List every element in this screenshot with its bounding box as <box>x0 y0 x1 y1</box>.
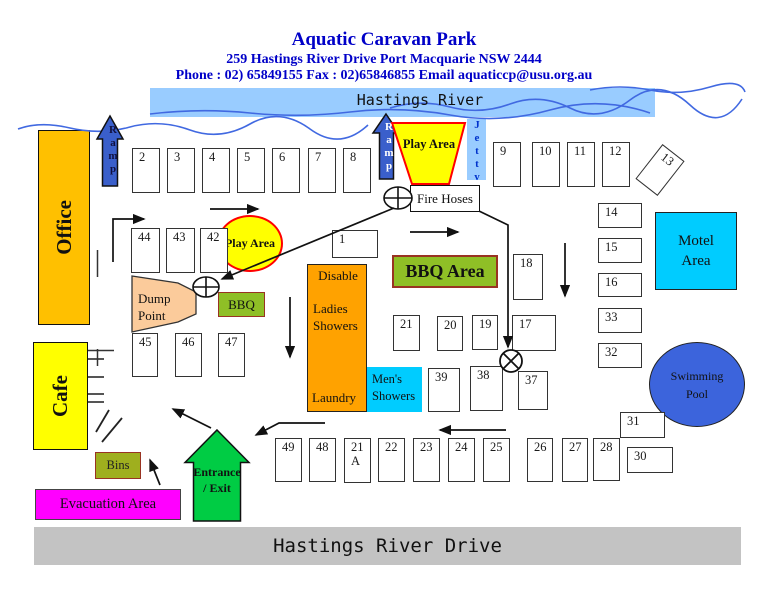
fire-hose-symbol-icon <box>193 277 219 297</box>
site-box-16: 16 <box>598 273 642 297</box>
cafe-area: Cafe <box>33 342 88 450</box>
site-number: 15 <box>599 239 641 255</box>
site-number: 47 <box>219 334 244 350</box>
site-number: 28 <box>594 439 619 455</box>
site-box-18: 18 <box>513 254 543 300</box>
site-box-13: 13 <box>635 144 684 196</box>
office-label: Office <box>52 200 77 255</box>
ramp-label: Ramp <box>380 121 394 179</box>
site-box-30: 30 <box>627 447 673 473</box>
site-box-26: 26 <box>527 438 553 482</box>
cafe-label: Cafe <box>48 375 73 417</box>
site-box-33: 33 <box>598 308 642 333</box>
site-number: 21 <box>394 316 419 332</box>
bbq-label: BBQ <box>228 297 255 313</box>
site-box-6: 6 <box>272 148 300 193</box>
fire-hoses-sign: Fire Hoses <box>410 185 480 212</box>
page-title: Aquatic Caravan Park <box>0 29 768 51</box>
bbq-area-label: BBQ Area <box>405 261 484 282</box>
site-number: 1 <box>333 231 377 247</box>
site-box-47: 47 <box>218 333 245 377</box>
site-number: 17 <box>513 316 555 332</box>
site-box-42: 42 <box>200 228 228 273</box>
site-number: 11 <box>568 143 594 159</box>
site-number: 13 <box>653 145 683 173</box>
site-box-14: 14 <box>598 203 642 228</box>
site-number: 46 <box>176 334 201 350</box>
site-box-37: 37 <box>518 371 548 410</box>
site-box-1: 1 <box>332 230 378 258</box>
site-box-44: 44 <box>131 228 160 273</box>
site-number: 2 <box>133 149 159 165</box>
road-bar: Hastings River Drive <box>34 527 741 565</box>
site-box-43: 43 <box>166 228 195 273</box>
site-number: 31 <box>621 413 664 429</box>
site-box-39: 39 <box>428 368 460 412</box>
site-number: 12 <box>603 143 629 159</box>
site-box-38: 38 <box>470 366 503 411</box>
site-number: 42 <box>201 229 227 245</box>
address-line: 259 Hastings River Drive Port Macquarie … <box>0 52 768 68</box>
site-box-21: 21 <box>393 315 420 351</box>
ramp-label: Ramp <box>103 124 118 186</box>
site-number: 33 <box>599 309 641 325</box>
site-box-8: 8 <box>343 148 371 193</box>
site-box-2: 2 <box>132 148 160 193</box>
site-number: 10 <box>533 143 559 159</box>
amenities-block: Disable Ladies Showers Laundry <box>307 264 367 412</box>
site-box-46: 46 <box>175 333 202 377</box>
site-box-21A: 21 A <box>344 438 371 483</box>
site-box-45: 45 <box>132 333 158 377</box>
site-box-19: 19 <box>472 315 498 350</box>
site-number: 4 <box>203 149 229 165</box>
bbq-spot: BBQ <box>218 292 265 317</box>
site-number: 20 <box>438 317 462 333</box>
site-number: 26 <box>528 439 552 455</box>
site-number: 27 <box>563 439 587 455</box>
site-number: 37 <box>519 372 547 388</box>
site-number: 30 <box>628 448 672 464</box>
contact-line: Phone : 02) 65849155 Fax : 02)65846855 E… <box>0 68 768 84</box>
laundry-label: Laundry <box>312 390 364 406</box>
site-number: 19 <box>473 316 497 332</box>
motel-area-label: Motel Area <box>673 231 719 272</box>
site-box-17: 17 <box>512 315 556 351</box>
bins-area: Bins <box>95 452 141 479</box>
disable-label: Disable <box>312 268 364 284</box>
jetty-label: Jetty <box>471 119 482 180</box>
swimming-pool-label: Swimming Pool <box>666 367 728 403</box>
site-number: 25 <box>484 439 509 455</box>
site-box-15: 15 <box>598 238 642 263</box>
road-markings <box>96 410 122 442</box>
fire-hoses-label: Fire Hoses <box>417 191 473 207</box>
site-number: 48 <box>310 439 335 455</box>
caravan-park-map: Aquatic Caravan Park 259 Hastings River … <box>0 0 768 593</box>
road-label: Hastings River Drive <box>273 535 502 557</box>
site-box-4: 4 <box>202 148 230 193</box>
ladies-showers-label: Ladies Showers <box>313 301 365 335</box>
site-number: 22 <box>379 439 404 455</box>
site-box-27: 27 <box>562 438 588 482</box>
site-box-9: 9 <box>493 142 521 187</box>
site-number: 32 <box>599 344 641 360</box>
bbq-area: BBQ Area <box>392 255 498 288</box>
site-number: 18 <box>514 255 542 271</box>
dump-point-label: Dump Point <box>138 291 190 325</box>
site-box-23: 23 <box>413 438 440 482</box>
site-box-24: 24 <box>448 438 475 482</box>
fire-hose-symbol-icon <box>384 187 412 209</box>
site-number: 49 <box>276 439 301 455</box>
site-number: 8 <box>344 149 370 165</box>
site-number: 24 <box>449 439 474 455</box>
mens-showers-label: Men's Showers <box>372 372 415 403</box>
motel-area: Motel Area <box>655 212 737 290</box>
site-number: 6 <box>273 149 299 165</box>
site-box-5: 5 <box>237 148 265 193</box>
tap-symbol-icon <box>500 350 522 372</box>
site-box-32: 32 <box>598 343 642 368</box>
site-number: 5 <box>238 149 264 165</box>
site-number: 16 <box>599 274 641 290</box>
river-label: Hastings River <box>250 91 590 109</box>
site-number: 7 <box>309 149 335 165</box>
site-number: 44 <box>132 229 159 245</box>
site-box-31: 31 <box>620 412 665 438</box>
evacuation-label: Evacuation Area <box>60 496 156 513</box>
site-number: 39 <box>429 369 459 385</box>
path-edge-ticks <box>88 250 114 366</box>
site-number: 38 <box>471 367 502 383</box>
site-number: 23 <box>414 439 439 455</box>
site-box-12: 12 <box>602 142 630 187</box>
site-number: 9 <box>494 143 520 159</box>
jetty-area: Jetty <box>467 119 486 180</box>
site-box-20: 20 <box>437 316 463 351</box>
site-number: 45 <box>133 334 157 350</box>
site-number: 43 <box>167 229 194 245</box>
mens-showers-area: Men's Showers <box>367 367 422 412</box>
site-number: 3 <box>168 149 194 165</box>
bins-label: Bins <box>107 458 130 473</box>
site-number: 14 <box>599 204 641 220</box>
site-box-11: 11 <box>567 142 595 187</box>
site-box-22: 22 <box>378 438 405 482</box>
site-box-25: 25 <box>483 438 510 482</box>
site-box-7: 7 <box>308 148 336 193</box>
site-number: 21 A <box>345 439 370 469</box>
entrance-exit-label: Entrance / Exit <box>191 465 243 496</box>
site-box-3: 3 <box>167 148 195 193</box>
site-box-48: 48 <box>309 438 336 482</box>
play-area-label: Play Area <box>225 237 275 251</box>
site-box-10: 10 <box>532 142 560 187</box>
office-area: Office <box>38 130 90 325</box>
site-box-28: 28 <box>593 438 620 481</box>
play-area-label: Play Area <box>398 137 460 152</box>
evacuation-area: Evacuation Area <box>35 489 181 520</box>
cafe-parking-ticks <box>88 359 104 402</box>
site-box-49: 49 <box>275 438 302 482</box>
play-area-trapezoid <box>392 123 465 184</box>
